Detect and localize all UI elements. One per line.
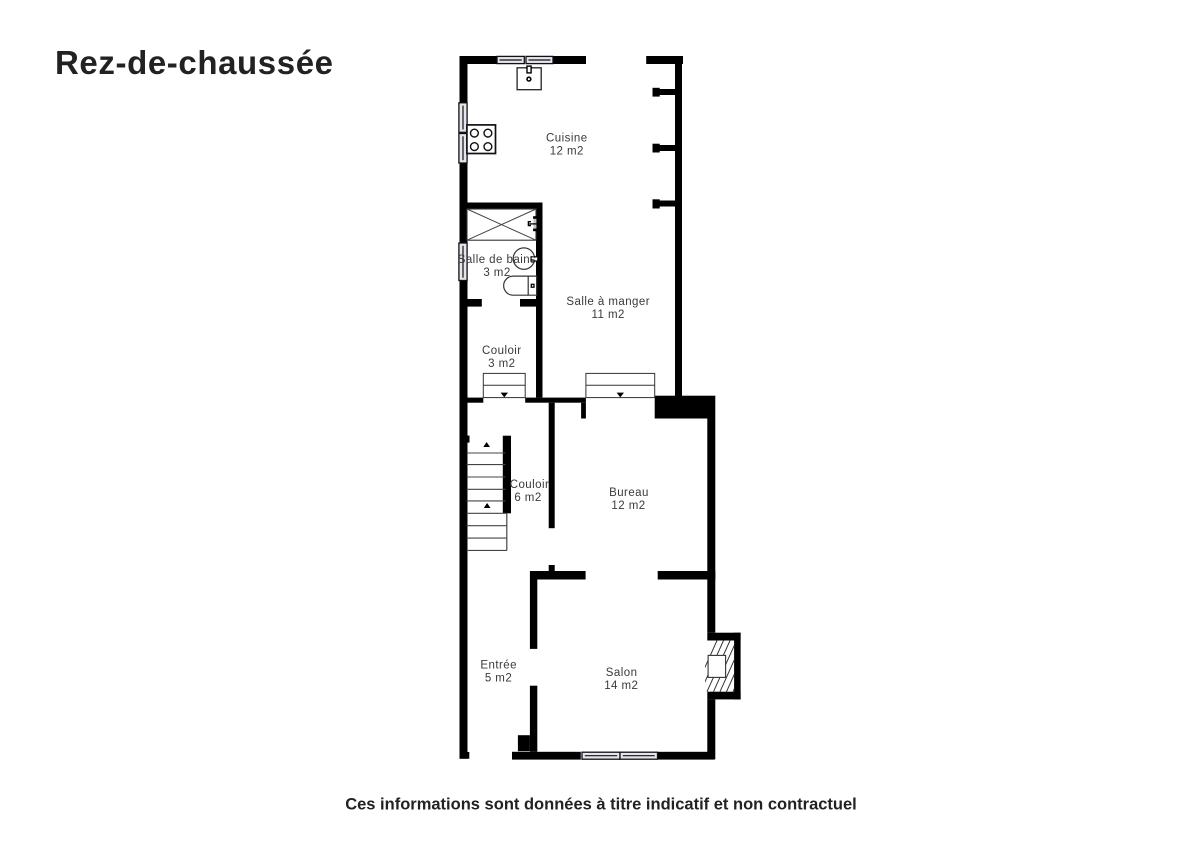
svg-text:12 m2: 12 m2 <box>550 146 584 158</box>
svg-text:Rez-de-chaussée: Rez-de-chaussée <box>55 44 334 81</box>
svg-text:3 m2: 3 m2 <box>483 267 510 279</box>
svg-text:Bureau: Bureau <box>609 487 649 499</box>
svg-text:Ces informations sont données: Ces informations sont données à titre in… <box>345 796 857 814</box>
svg-text:11 m2: 11 m2 <box>592 309 625 321</box>
svg-text:3 m2: 3 m2 <box>488 358 515 370</box>
svg-text:Couloir: Couloir <box>510 479 550 491</box>
svg-text:5 m2: 5 m2 <box>485 673 512 685</box>
svg-text:Cuisine: Cuisine <box>546 133 588 145</box>
svg-text:12 m2: 12 m2 <box>611 500 645 512</box>
svg-text:Couloir: Couloir <box>482 345 522 357</box>
svg-text:Salle à manger: Salle à manger <box>566 296 650 308</box>
svg-text:Entrée: Entrée <box>480 660 517 672</box>
svg-text:14 m2: 14 m2 <box>604 680 638 692</box>
svg-text:Salon: Salon <box>606 667 638 679</box>
svg-text:Salle de bains: Salle de bains <box>458 254 537 266</box>
svg-text:6 m2: 6 m2 <box>514 492 541 504</box>
